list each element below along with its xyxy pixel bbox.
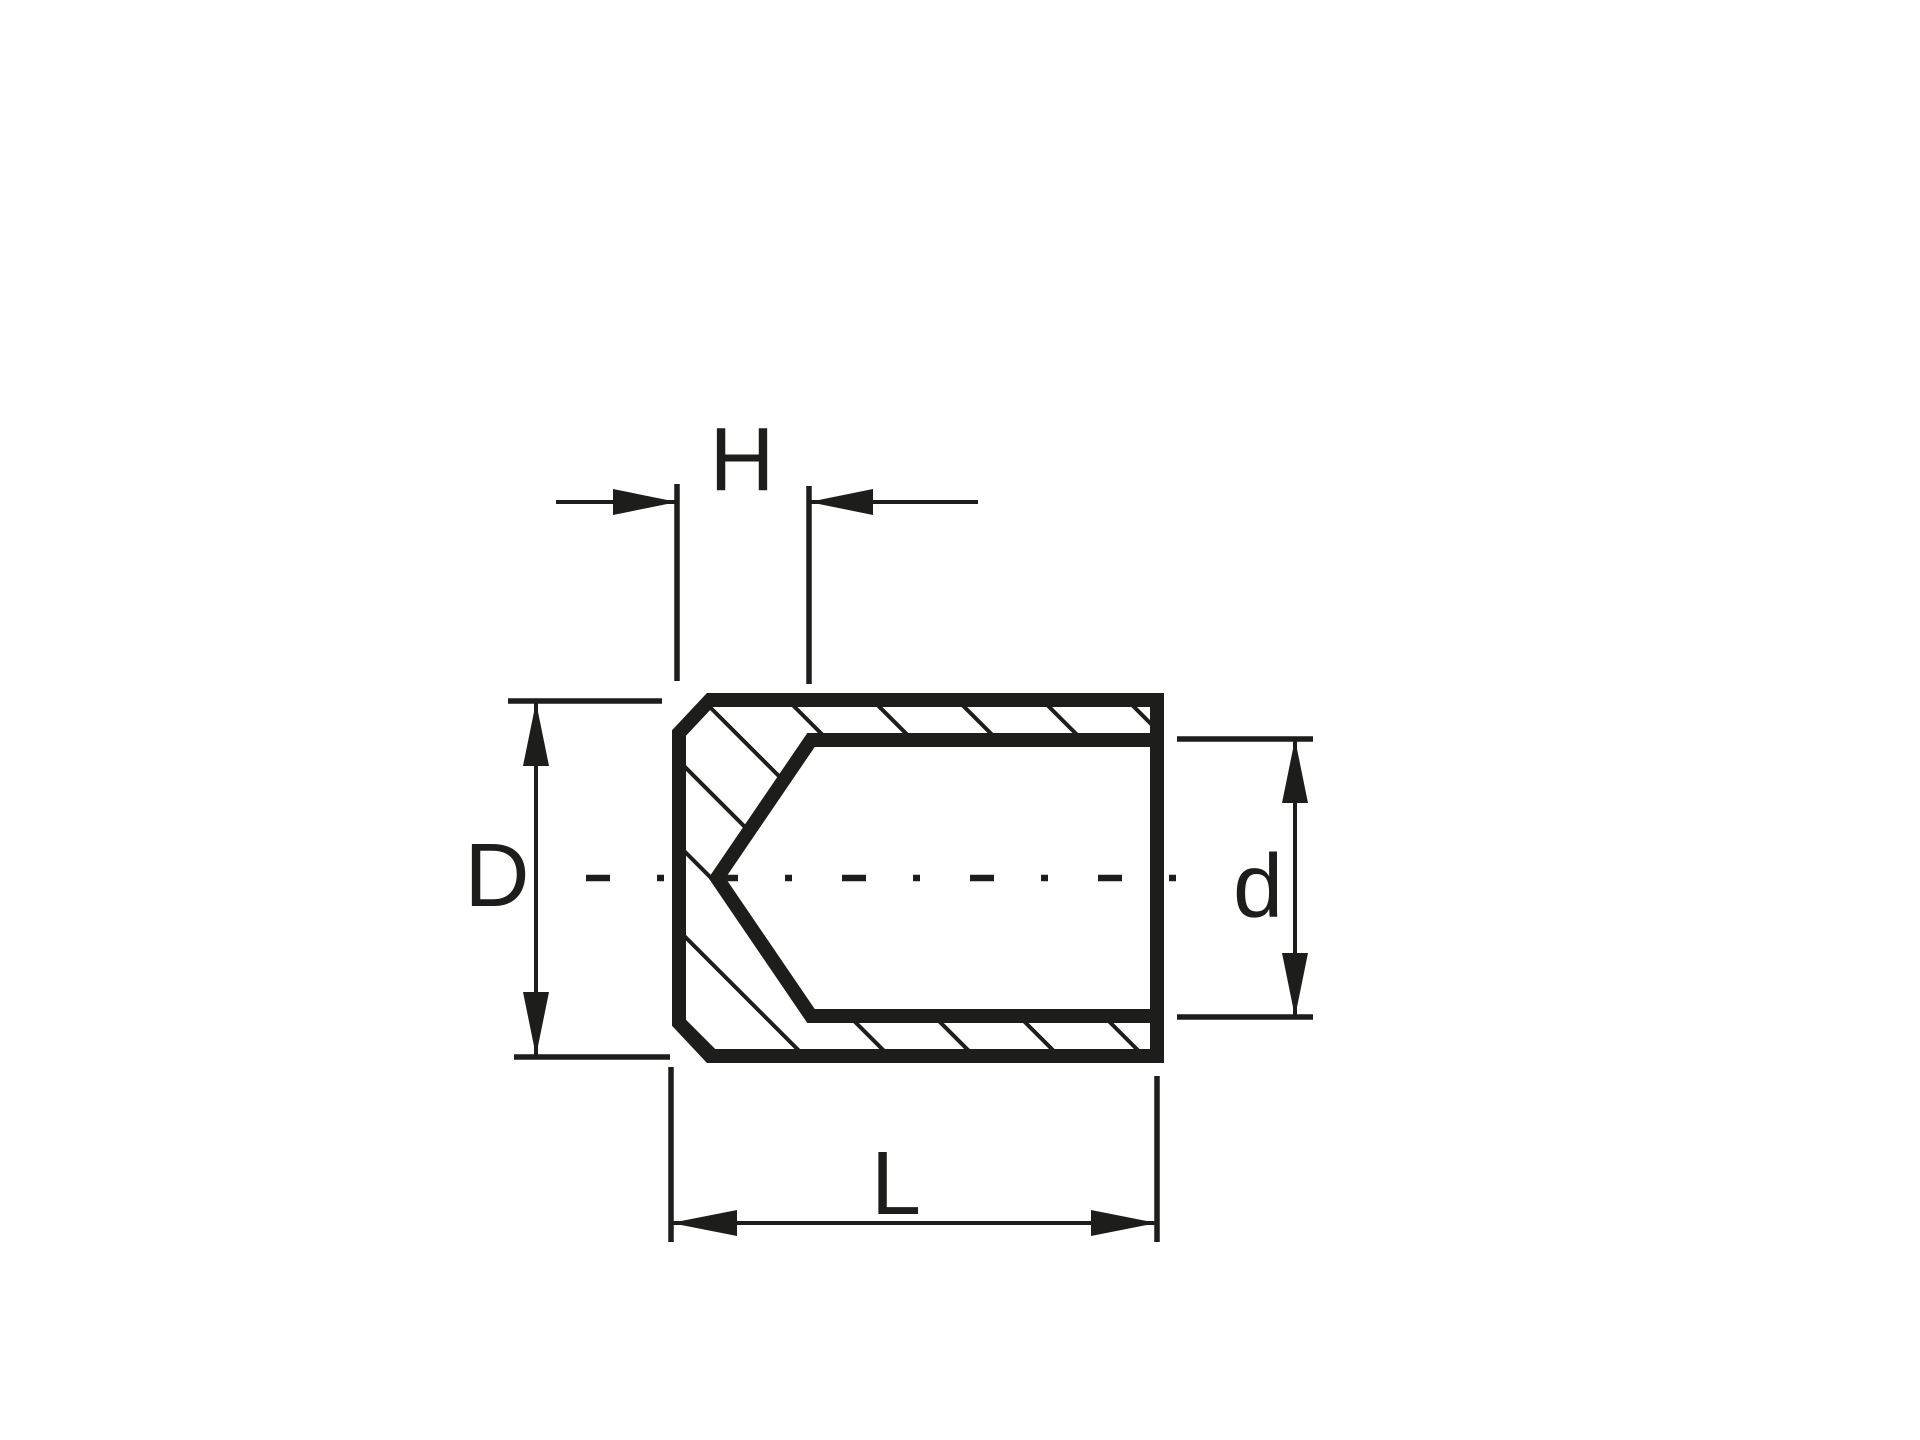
bore-and-countersink-outline — [717, 740, 1157, 1016]
dimension-H: H — [556, 410, 978, 684]
d-outer-arrow-bottom — [523, 992, 549, 1056]
dimension-L: L — [671, 1067, 1157, 1242]
h-arrow-right — [809, 489, 873, 515]
technical-drawing-page: H D d L — [0, 0, 1920, 1440]
l-arrow-left — [671, 1210, 737, 1236]
dimension-d: d — [1177, 739, 1313, 1017]
d-bore-arrow-top — [1282, 739, 1308, 803]
dimension-D: D — [465, 701, 671, 1057]
section-drawing-canvas: H D d L — [0, 0, 1920, 1440]
l-arrow-right — [1091, 1210, 1157, 1236]
dimension-label-L: L — [871, 1134, 921, 1234]
h-arrow-left — [613, 489, 677, 515]
d-bore-arrow-bottom — [1282, 953, 1308, 1017]
dimension-label-H: H — [710, 410, 775, 510]
dimension-label-d: d — [1233, 837, 1283, 937]
d-outer-arrow-top — [523, 702, 549, 766]
dimension-label-D: D — [465, 826, 530, 926]
